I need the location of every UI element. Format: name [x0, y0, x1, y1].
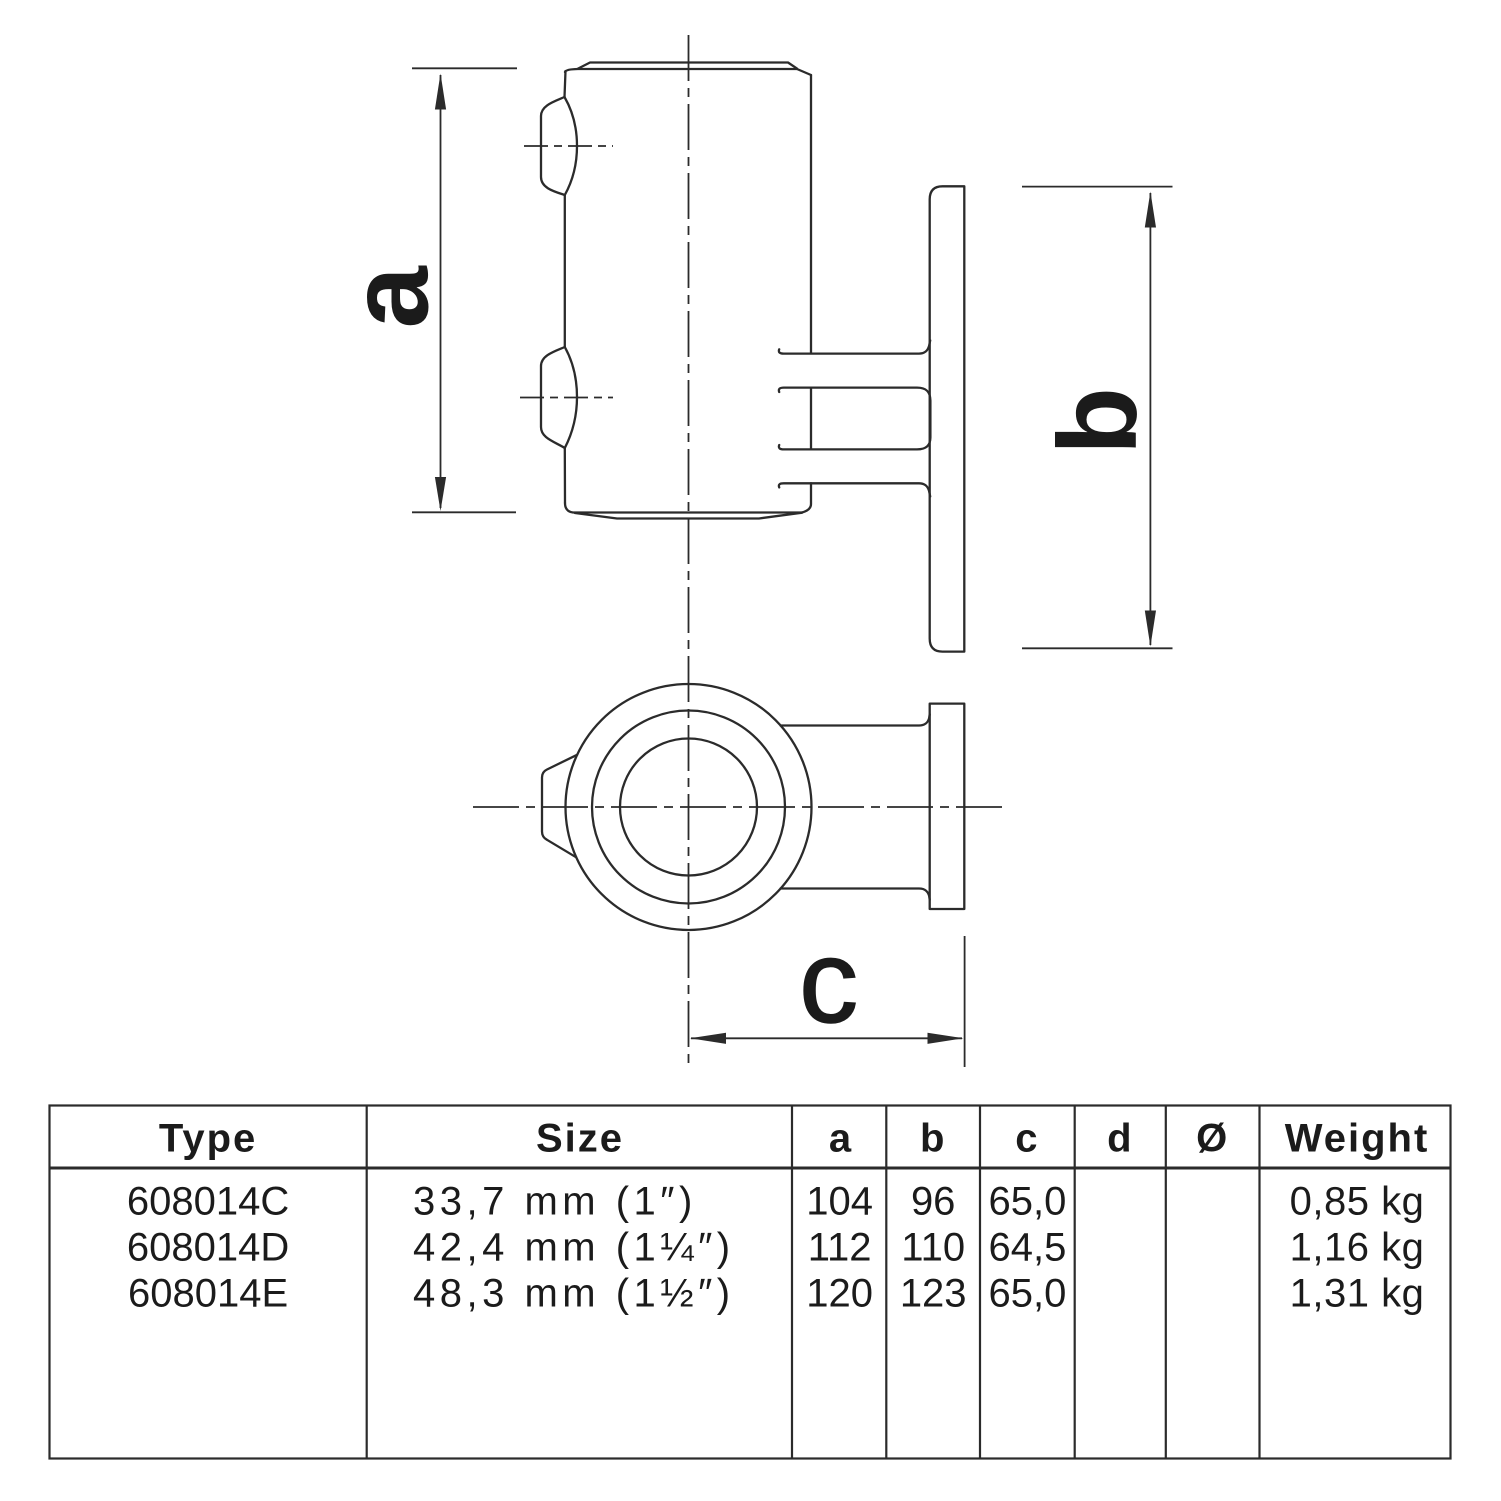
svg-text:96: 96 [911, 1180, 956, 1224]
svg-text:b: b [920, 1117, 946, 1161]
svg-text:64,5: 64,5 [988, 1226, 1066, 1270]
svg-text:b: b [1036, 387, 1160, 455]
svg-text:120: 120 [806, 1272, 873, 1316]
svg-text:1,31 kg: 1,31 kg [1290, 1272, 1425, 1316]
svg-text:104: 104 [806, 1180, 873, 1224]
svg-text:123: 123 [900, 1272, 967, 1316]
svg-text:110: 110 [901, 1226, 965, 1270]
svg-text:c: c [799, 916, 858, 1048]
svg-text:a: a [327, 265, 452, 328]
svg-text:33,7 mm (1″): 33,7 mm (1″) [413, 1180, 697, 1224]
svg-text:48,3 mm (1½″): 48,3 mm (1½″) [413, 1272, 735, 1316]
svg-text:112: 112 [808, 1226, 872, 1270]
svg-text:1,16 kg: 1,16 kg [1290, 1226, 1425, 1270]
svg-text:608014E: 608014E [128, 1272, 288, 1316]
svg-text:Ø: Ø [1196, 1117, 1229, 1161]
svg-text:a: a [829, 1117, 853, 1161]
svg-text:65,0: 65,0 [988, 1272, 1066, 1316]
svg-text:Size: Size [536, 1117, 624, 1161]
svg-text:65,0: 65,0 [988, 1180, 1066, 1224]
svg-text:d: d [1107, 1117, 1133, 1161]
svg-text:Weight: Weight [1285, 1117, 1430, 1161]
svg-text:608014C: 608014C [127, 1180, 289, 1224]
svg-text:608014D: 608014D [127, 1226, 289, 1270]
svg-text:c: c [1015, 1117, 1039, 1161]
svg-text:0,85 kg: 0,85 kg [1290, 1180, 1425, 1224]
svg-text:42,4 mm (1¼″): 42,4 mm (1¼″) [413, 1226, 735, 1270]
svg-text:Type: Type [159, 1117, 257, 1161]
